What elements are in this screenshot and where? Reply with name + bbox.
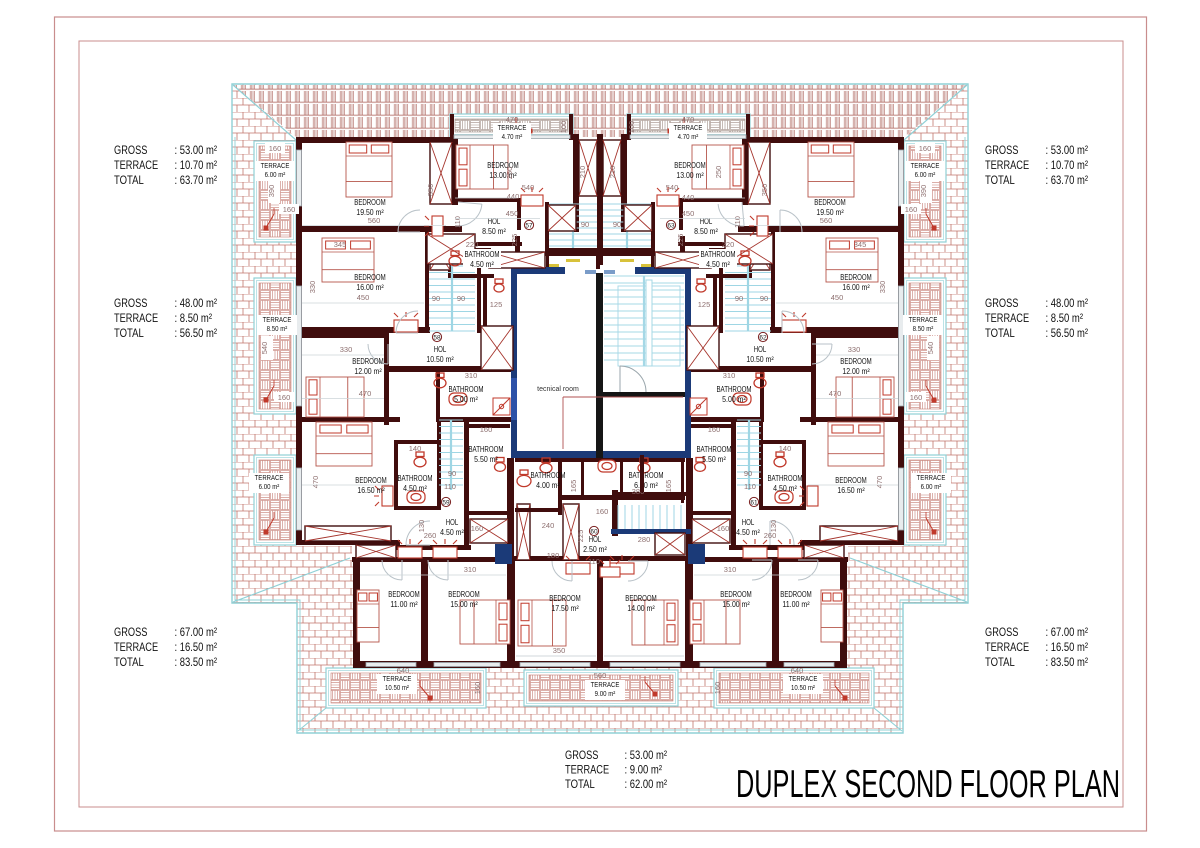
- svg-text:57: 57: [525, 223, 533, 230]
- svg-text:130: 130: [417, 520, 426, 533]
- svg-text:160: 160: [471, 524, 484, 533]
- svg-text:: 9.00 m²: : 9.00 m²: [625, 763, 663, 777]
- svg-text:4.00 m²: 4.00 m²: [536, 481, 560, 490]
- svg-text:280: 280: [638, 535, 651, 544]
- svg-text:TERRACE: TERRACE: [591, 680, 620, 689]
- svg-text:8.50 m²: 8.50 m²: [694, 227, 718, 236]
- svg-text:TERRACE: TERRACE: [383, 674, 412, 683]
- svg-text:470: 470: [829, 389, 842, 398]
- svg-text:210: 210: [608, 166, 617, 179]
- svg-text:330: 330: [308, 281, 317, 294]
- svg-text:160: 160: [708, 425, 721, 434]
- svg-text:17.50 m²: 17.50 m²: [551, 604, 579, 613]
- svg-text:350: 350: [553, 646, 566, 655]
- svg-text:TOTAL: TOTAL: [985, 655, 1015, 669]
- svg-text:: 16.50 m²: : 16.50 m²: [175, 640, 218, 654]
- svg-text:BATHROOM: BATHROOM: [468, 445, 503, 454]
- svg-text:560: 560: [594, 671, 607, 680]
- svg-text:: 83.50 m²: : 83.50 m²: [1046, 655, 1089, 669]
- svg-text:160: 160: [283, 205, 296, 214]
- svg-text:110: 110: [744, 482, 756, 491]
- svg-text:TERRACE: TERRACE: [917, 473, 946, 482]
- svg-text:BEDROOM: BEDROOM: [487, 161, 519, 170]
- svg-text:160: 160: [480, 425, 493, 434]
- svg-text:390: 390: [267, 185, 276, 198]
- svg-text:560: 560: [368, 216, 381, 225]
- svg-text:BATHROOM: BATHROOM: [628, 471, 663, 480]
- svg-text:125: 125: [490, 300, 503, 309]
- svg-text:GROSS: GROSS: [985, 296, 1018, 310]
- svg-text:BEDROOM: BEDROOM: [352, 357, 384, 366]
- svg-text:160: 160: [919, 144, 932, 153]
- svg-text:GROSS: GROSS: [114, 296, 147, 310]
- svg-text:TOTAL: TOTAL: [114, 173, 144, 187]
- svg-text:90: 90: [735, 294, 743, 303]
- svg-text:165: 165: [569, 480, 578, 493]
- svg-text:HOL: HOL: [742, 518, 755, 527]
- svg-text:BEDROOM: BEDROOM: [674, 161, 706, 170]
- svg-text:60: 60: [590, 529, 598, 536]
- svg-text:10.50 m²: 10.50 m²: [385, 685, 409, 692]
- svg-text:58: 58: [433, 335, 441, 342]
- svg-text:16.00 m²: 16.00 m²: [356, 283, 384, 292]
- svg-text:470: 470: [311, 476, 320, 489]
- svg-text:110: 110: [444, 482, 456, 491]
- svg-text:BATHROOM: BATHROOM: [700, 250, 735, 259]
- svg-text:HOL: HOL: [446, 518, 459, 527]
- svg-text:: 63.70 m²: : 63.70 m²: [175, 173, 218, 187]
- svg-text:160: 160: [269, 144, 282, 153]
- svg-text:: 83.50 m²: : 83.50 m²: [175, 655, 218, 669]
- svg-text:BEDROOM: BEDROOM: [354, 198, 386, 207]
- svg-text:TERRACE: TERRACE: [909, 315, 938, 324]
- svg-text:BEDROOM: BEDROOM: [549, 594, 581, 603]
- svg-text:BEDROOM: BEDROOM: [355, 476, 387, 485]
- svg-text:310: 310: [464, 565, 477, 574]
- svg-text:TOTAL: TOTAL: [985, 173, 1015, 187]
- svg-text:640: 640: [397, 666, 410, 675]
- svg-text:: 53.00 m²: : 53.00 m²: [175, 143, 218, 157]
- svg-text:BEDROOM: BEDROOM: [835, 476, 867, 485]
- svg-text:540: 540: [666, 183, 679, 192]
- svg-text:BEDROOM: BEDROOM: [354, 273, 386, 282]
- svg-text:: 53.00 m²: : 53.00 m²: [625, 748, 668, 762]
- svg-text:180: 180: [547, 551, 560, 560]
- svg-text:: 16.50 m²: : 16.50 m²: [1046, 640, 1089, 654]
- svg-text:450: 450: [831, 293, 844, 302]
- svg-text:165: 165: [664, 480, 673, 493]
- svg-text:BEDROOM: BEDROOM: [388, 590, 420, 599]
- svg-text:390: 390: [919, 185, 928, 198]
- svg-text:100: 100: [627, 121, 636, 134]
- svg-text:: 67.00 m²: : 67.00 m²: [1046, 625, 1089, 639]
- svg-text:: 8.50 m²: : 8.50 m²: [1046, 311, 1084, 325]
- svg-text:TERRACE: TERRACE: [674, 123, 703, 132]
- svg-text:160: 160: [717, 524, 730, 533]
- svg-text:4.50 m²: 4.50 m²: [706, 260, 730, 269]
- svg-text:62: 62: [759, 335, 767, 342]
- svg-text:BATHROOM: BATHROOM: [767, 474, 802, 483]
- svg-text:: 10.70 m²: : 10.70 m²: [175, 158, 218, 172]
- svg-text:4.50 m²: 4.50 m²: [736, 528, 760, 537]
- svg-text:90: 90: [760, 294, 768, 303]
- svg-text:8.50 m²: 8.50 m²: [913, 326, 934, 333]
- svg-text:160: 160: [905, 205, 918, 214]
- svg-text:BATHROOM: BATHROOM: [397, 474, 432, 483]
- svg-text:6.00 m²: 6.00 m²: [915, 172, 936, 179]
- svg-text:90: 90: [581, 220, 589, 229]
- svg-text:160: 160: [713, 682, 722, 695]
- svg-text:330: 330: [878, 281, 887, 294]
- svg-text:450: 450: [682, 209, 695, 218]
- svg-text:: 8.50 m²: : 8.50 m²: [175, 311, 213, 325]
- svg-text:TERRACE: TERRACE: [114, 158, 158, 172]
- svg-text:BATHROOM: BATHROOM: [696, 445, 731, 454]
- svg-text:HOL: HOL: [754, 345, 767, 354]
- svg-text:: 48.00 m²: : 48.00 m²: [175, 296, 218, 310]
- svg-text:6.00 m²: 6.00 m²: [921, 484, 942, 491]
- svg-text:4.70 m²: 4.70 m²: [502, 134, 523, 141]
- svg-text:11.00 m²: 11.00 m²: [782, 600, 810, 609]
- svg-text:225: 225: [576, 530, 585, 543]
- svg-text:345: 345: [334, 240, 347, 249]
- svg-text:BATHROOM: BATHROOM: [716, 385, 751, 394]
- svg-text:BEDROOM: BEDROOM: [840, 357, 872, 366]
- svg-text:BATHROOM: BATHROOM: [530, 471, 565, 480]
- svg-text:TERRACE: TERRACE: [985, 158, 1029, 172]
- svg-text:4.50 m²: 4.50 m²: [470, 260, 494, 269]
- svg-text:BEDROOM: BEDROOM: [448, 590, 480, 599]
- svg-text:TERRACE: TERRACE: [255, 473, 284, 482]
- svg-text:61: 61: [750, 500, 758, 507]
- svg-text:DUPLEX SECOND FLOOR PLAN: DUPLEX SECOND FLOOR PLAN: [736, 763, 1120, 806]
- svg-text:59: 59: [442, 500, 450, 507]
- svg-text:63: 63: [667, 223, 675, 230]
- svg-text:310: 310: [465, 371, 478, 380]
- svg-text:350: 350: [426, 184, 435, 197]
- svg-text:90: 90: [457, 294, 465, 303]
- svg-text:220: 220: [466, 240, 479, 249]
- svg-text:GROSS: GROSS: [985, 625, 1018, 639]
- svg-text:TERRACE: TERRACE: [261, 161, 290, 170]
- svg-text:TOTAL: TOTAL: [114, 326, 144, 340]
- svg-text:BEDROOM: BEDROOM: [814, 198, 846, 207]
- svg-text:tecnical room: tecnical room: [537, 386, 579, 393]
- svg-text:GROSS: GROSS: [985, 143, 1018, 157]
- svg-text:5.00 m²: 5.00 m²: [722, 395, 746, 404]
- svg-text:HOL: HOL: [434, 345, 447, 354]
- svg-text:220: 220: [722, 240, 735, 249]
- svg-text:16.00 m²: 16.00 m²: [842, 283, 870, 292]
- svg-text:5.00 m²: 5.00 m²: [454, 395, 478, 404]
- svg-text:110: 110: [588, 557, 600, 566]
- svg-text:310: 310: [723, 371, 736, 380]
- svg-text:13.00 m²: 13.00 m²: [676, 171, 704, 180]
- svg-text:BATHROOM: BATHROOM: [448, 385, 483, 394]
- svg-text:310: 310: [724, 565, 737, 574]
- svg-text:12.00 m²: 12.00 m²: [842, 367, 870, 376]
- svg-text:11.00 m²: 11.00 m²: [390, 600, 418, 609]
- svg-text:GROSS: GROSS: [114, 143, 147, 157]
- svg-text:BEDROOM: BEDROOM: [625, 594, 657, 603]
- svg-text:540: 540: [522, 183, 535, 192]
- svg-text:: 56.50 m²: : 56.50 m²: [175, 326, 218, 340]
- svg-text:: 56.50 m²: : 56.50 m²: [1046, 326, 1089, 340]
- svg-text:540: 540: [260, 342, 269, 355]
- svg-text:470: 470: [875, 476, 884, 489]
- svg-text:4.50 m²: 4.50 m²: [403, 484, 427, 493]
- svg-text:HOL: HOL: [589, 535, 602, 544]
- svg-text:: 62.00 m²: : 62.00 m²: [625, 777, 668, 791]
- svg-text:2.50 m²: 2.50 m²: [583, 545, 607, 554]
- svg-text:4.70 m²: 4.70 m²: [678, 134, 699, 141]
- svg-text:GROSS: GROSS: [114, 625, 147, 639]
- svg-text:6.00 m²: 6.00 m²: [265, 172, 286, 179]
- svg-text:330: 330: [848, 345, 861, 354]
- svg-text:TERRACE: TERRACE: [114, 311, 158, 325]
- svg-text:160: 160: [596, 507, 609, 516]
- svg-text:250: 250: [714, 166, 723, 179]
- svg-text:330: 330: [340, 345, 353, 354]
- svg-text:6.00 m²: 6.00 m²: [259, 484, 280, 491]
- svg-text:560: 560: [820, 216, 833, 225]
- svg-text:: 10.70 m²: : 10.70 m²: [1046, 158, 1089, 172]
- svg-text:: 48.00 m²: : 48.00 m²: [1046, 296, 1089, 310]
- svg-text:240: 240: [542, 521, 555, 530]
- svg-text:TERRACE: TERRACE: [911, 161, 940, 170]
- svg-text:470: 470: [506, 115, 519, 124]
- svg-text:: 63.70 m²: : 63.70 m²: [1046, 173, 1089, 187]
- svg-text:: 67.00 m²: : 67.00 m²: [175, 625, 218, 639]
- svg-text:BATHROOM: BATHROOM: [464, 250, 499, 259]
- svg-text:TOTAL: TOTAL: [114, 655, 144, 669]
- svg-text:TERRACE: TERRACE: [985, 640, 1029, 654]
- svg-text:440: 440: [682, 193, 695, 202]
- svg-text:BEDROOM: BEDROOM: [840, 273, 872, 282]
- svg-text:160: 160: [278, 393, 291, 402]
- svg-text:10.50 m²: 10.50 m²: [426, 355, 454, 364]
- svg-text:90: 90: [613, 220, 621, 229]
- svg-text:90: 90: [432, 294, 440, 303]
- svg-text:250: 250: [505, 167, 514, 180]
- svg-text:BEDROOM: BEDROOM: [780, 590, 812, 599]
- svg-text:TERRACE: TERRACE: [263, 315, 292, 324]
- svg-text:160: 160: [910, 393, 923, 402]
- svg-text:140: 140: [409, 444, 422, 453]
- svg-text:TERRACE: TERRACE: [565, 763, 609, 777]
- svg-text:15.00 m²: 15.00 m²: [722, 600, 750, 609]
- svg-text:470: 470: [359, 389, 372, 398]
- svg-text:14.00 m²: 14.00 m²: [627, 604, 655, 613]
- svg-text:125: 125: [698, 300, 711, 309]
- svg-text:90: 90: [744, 469, 752, 478]
- svg-text:470: 470: [682, 115, 695, 124]
- svg-text:16.50 m²: 16.50 m²: [357, 486, 385, 495]
- svg-text:4.50 m²: 4.50 m²: [440, 528, 464, 537]
- svg-text:5.50 m²: 5.50 m²: [702, 455, 726, 464]
- svg-text:GROSS: GROSS: [565, 748, 598, 762]
- svg-text:8.50 m²: 8.50 m²: [267, 326, 288, 333]
- svg-text:5.50 m²: 5.50 m²: [474, 455, 498, 464]
- svg-text:640: 640: [791, 666, 804, 675]
- svg-text:10.50 m²: 10.50 m²: [791, 685, 815, 692]
- svg-text:110: 110: [453, 216, 462, 228]
- svg-text:TOTAL: TOTAL: [985, 326, 1015, 340]
- svg-text:15.00 m²: 15.00 m²: [450, 600, 478, 609]
- svg-text:4.50 m²: 4.50 m²: [773, 484, 797, 493]
- svg-text:TERRACE: TERRACE: [789, 674, 818, 683]
- svg-text:450: 450: [506, 209, 519, 218]
- svg-text:16.50 m²: 16.50 m²: [837, 486, 865, 495]
- svg-text:: 53.00 m²: : 53.00 m²: [1046, 143, 1089, 157]
- svg-text:540: 540: [926, 342, 935, 355]
- svg-text:130: 130: [769, 520, 778, 533]
- svg-text:TERRACE: TERRACE: [985, 311, 1029, 325]
- svg-text:160: 160: [473, 682, 482, 695]
- svg-text:225: 225: [510, 234, 519, 247]
- svg-text:TERRACE: TERRACE: [498, 123, 527, 132]
- svg-text:BEDROOM: BEDROOM: [720, 590, 752, 599]
- svg-text:TOTAL: TOTAL: [565, 777, 595, 791]
- svg-text:90: 90: [448, 469, 456, 478]
- svg-text:345: 345: [854, 240, 867, 249]
- svg-text:8.50 m²: 8.50 m²: [482, 227, 506, 236]
- svg-text:9.00 m²: 9.00 m²: [595, 691, 616, 698]
- svg-text:210: 210: [578, 166, 587, 179]
- svg-text:350: 350: [760, 184, 769, 197]
- svg-text:12.00 m²: 12.00 m²: [354, 367, 382, 376]
- svg-text:450: 450: [357, 293, 370, 302]
- svg-text:225: 225: [676, 234, 685, 247]
- svg-text:TERRACE: TERRACE: [114, 640, 158, 654]
- svg-text:10.50 m²: 10.50 m²: [746, 355, 774, 364]
- svg-text:140: 140: [779, 444, 792, 453]
- svg-text:100: 100: [559, 121, 568, 134]
- svg-text:440: 440: [507, 192, 520, 201]
- svg-text:110: 110: [733, 216, 742, 228]
